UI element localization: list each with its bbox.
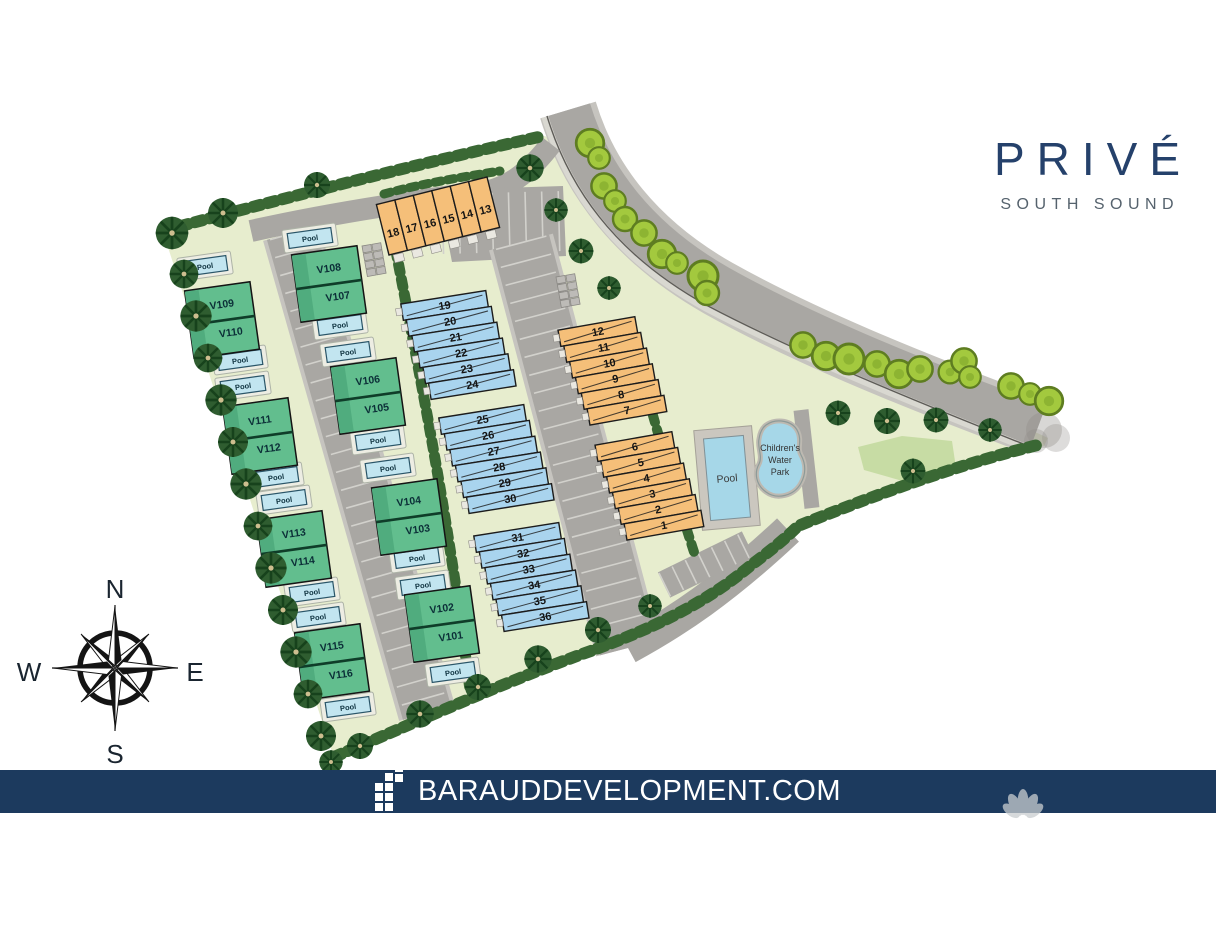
villa-building-v108-v107: V108 V107 [292, 246, 367, 323]
compass-west-label: W [17, 657, 42, 687]
unit-label-23: 23 [460, 363, 474, 377]
compass-rose: N E S W [17, 574, 204, 769]
baraud-squares-icon [375, 767, 405, 813]
brand-subtitle: SOUTH SOUND [962, 196, 1216, 214]
unit-label-12: 12 [591, 325, 605, 339]
unit-label-36: 36 [538, 611, 552, 625]
unit-label-27: 27 [487, 445, 501, 459]
villa-building-v104-v103: V104 V103 [372, 479, 447, 556]
unit-label-22: 22 [454, 347, 468, 361]
compass-south-label: S [106, 739, 123, 769]
unit-label-31: 31 [511, 531, 525, 545]
unit-label-30: 30 [503, 493, 517, 507]
brand-logo: PRIVÉ SOUTH SOUND [962, 132, 1212, 214]
water-park-label-line2: Water [768, 455, 792, 465]
compass-east-label: E [186, 657, 203, 687]
unit-label-26: 26 [481, 429, 495, 443]
site-plan-poster: Pool Pool Pool Pool Pool Pool Pool Pool … [0, 0, 1216, 940]
water-park-label-line1: Children's [760, 443, 800, 453]
amenity-pool: Pool [694, 426, 760, 531]
unit-label-21: 21 [449, 331, 463, 345]
unit-label-11: 11 [597, 341, 611, 355]
unit-label-33: 33 [522, 563, 536, 577]
compass-north-label: N [106, 574, 125, 604]
childrens-water-park: Children's Water Park [756, 421, 804, 496]
unit-label-29: 29 [498, 477, 512, 491]
villa-building-v102-v101: V102 V101 [405, 586, 480, 663]
unit-label-28: 28 [492, 461, 506, 475]
unit-label-20: 20 [443, 315, 457, 329]
unit-label-25: 25 [476, 413, 490, 427]
amenity-pool-label: Pool [716, 472, 738, 486]
footer-website: BARAUDDEVELOPMENT.COM [418, 775, 841, 808]
unit-label-10: 10 [603, 357, 617, 371]
brand-title: PRIVÉ [962, 132, 1216, 186]
water-park-label-line3: Park [771, 467, 790, 477]
unit-label-32: 32 [516, 547, 530, 561]
unit-label-19: 19 [438, 299, 452, 313]
leaf-watermark-icon [995, 780, 1051, 820]
villa-building-v106-v105: V106 V105 [331, 358, 406, 435]
unit-label-35: 35 [533, 595, 547, 609]
